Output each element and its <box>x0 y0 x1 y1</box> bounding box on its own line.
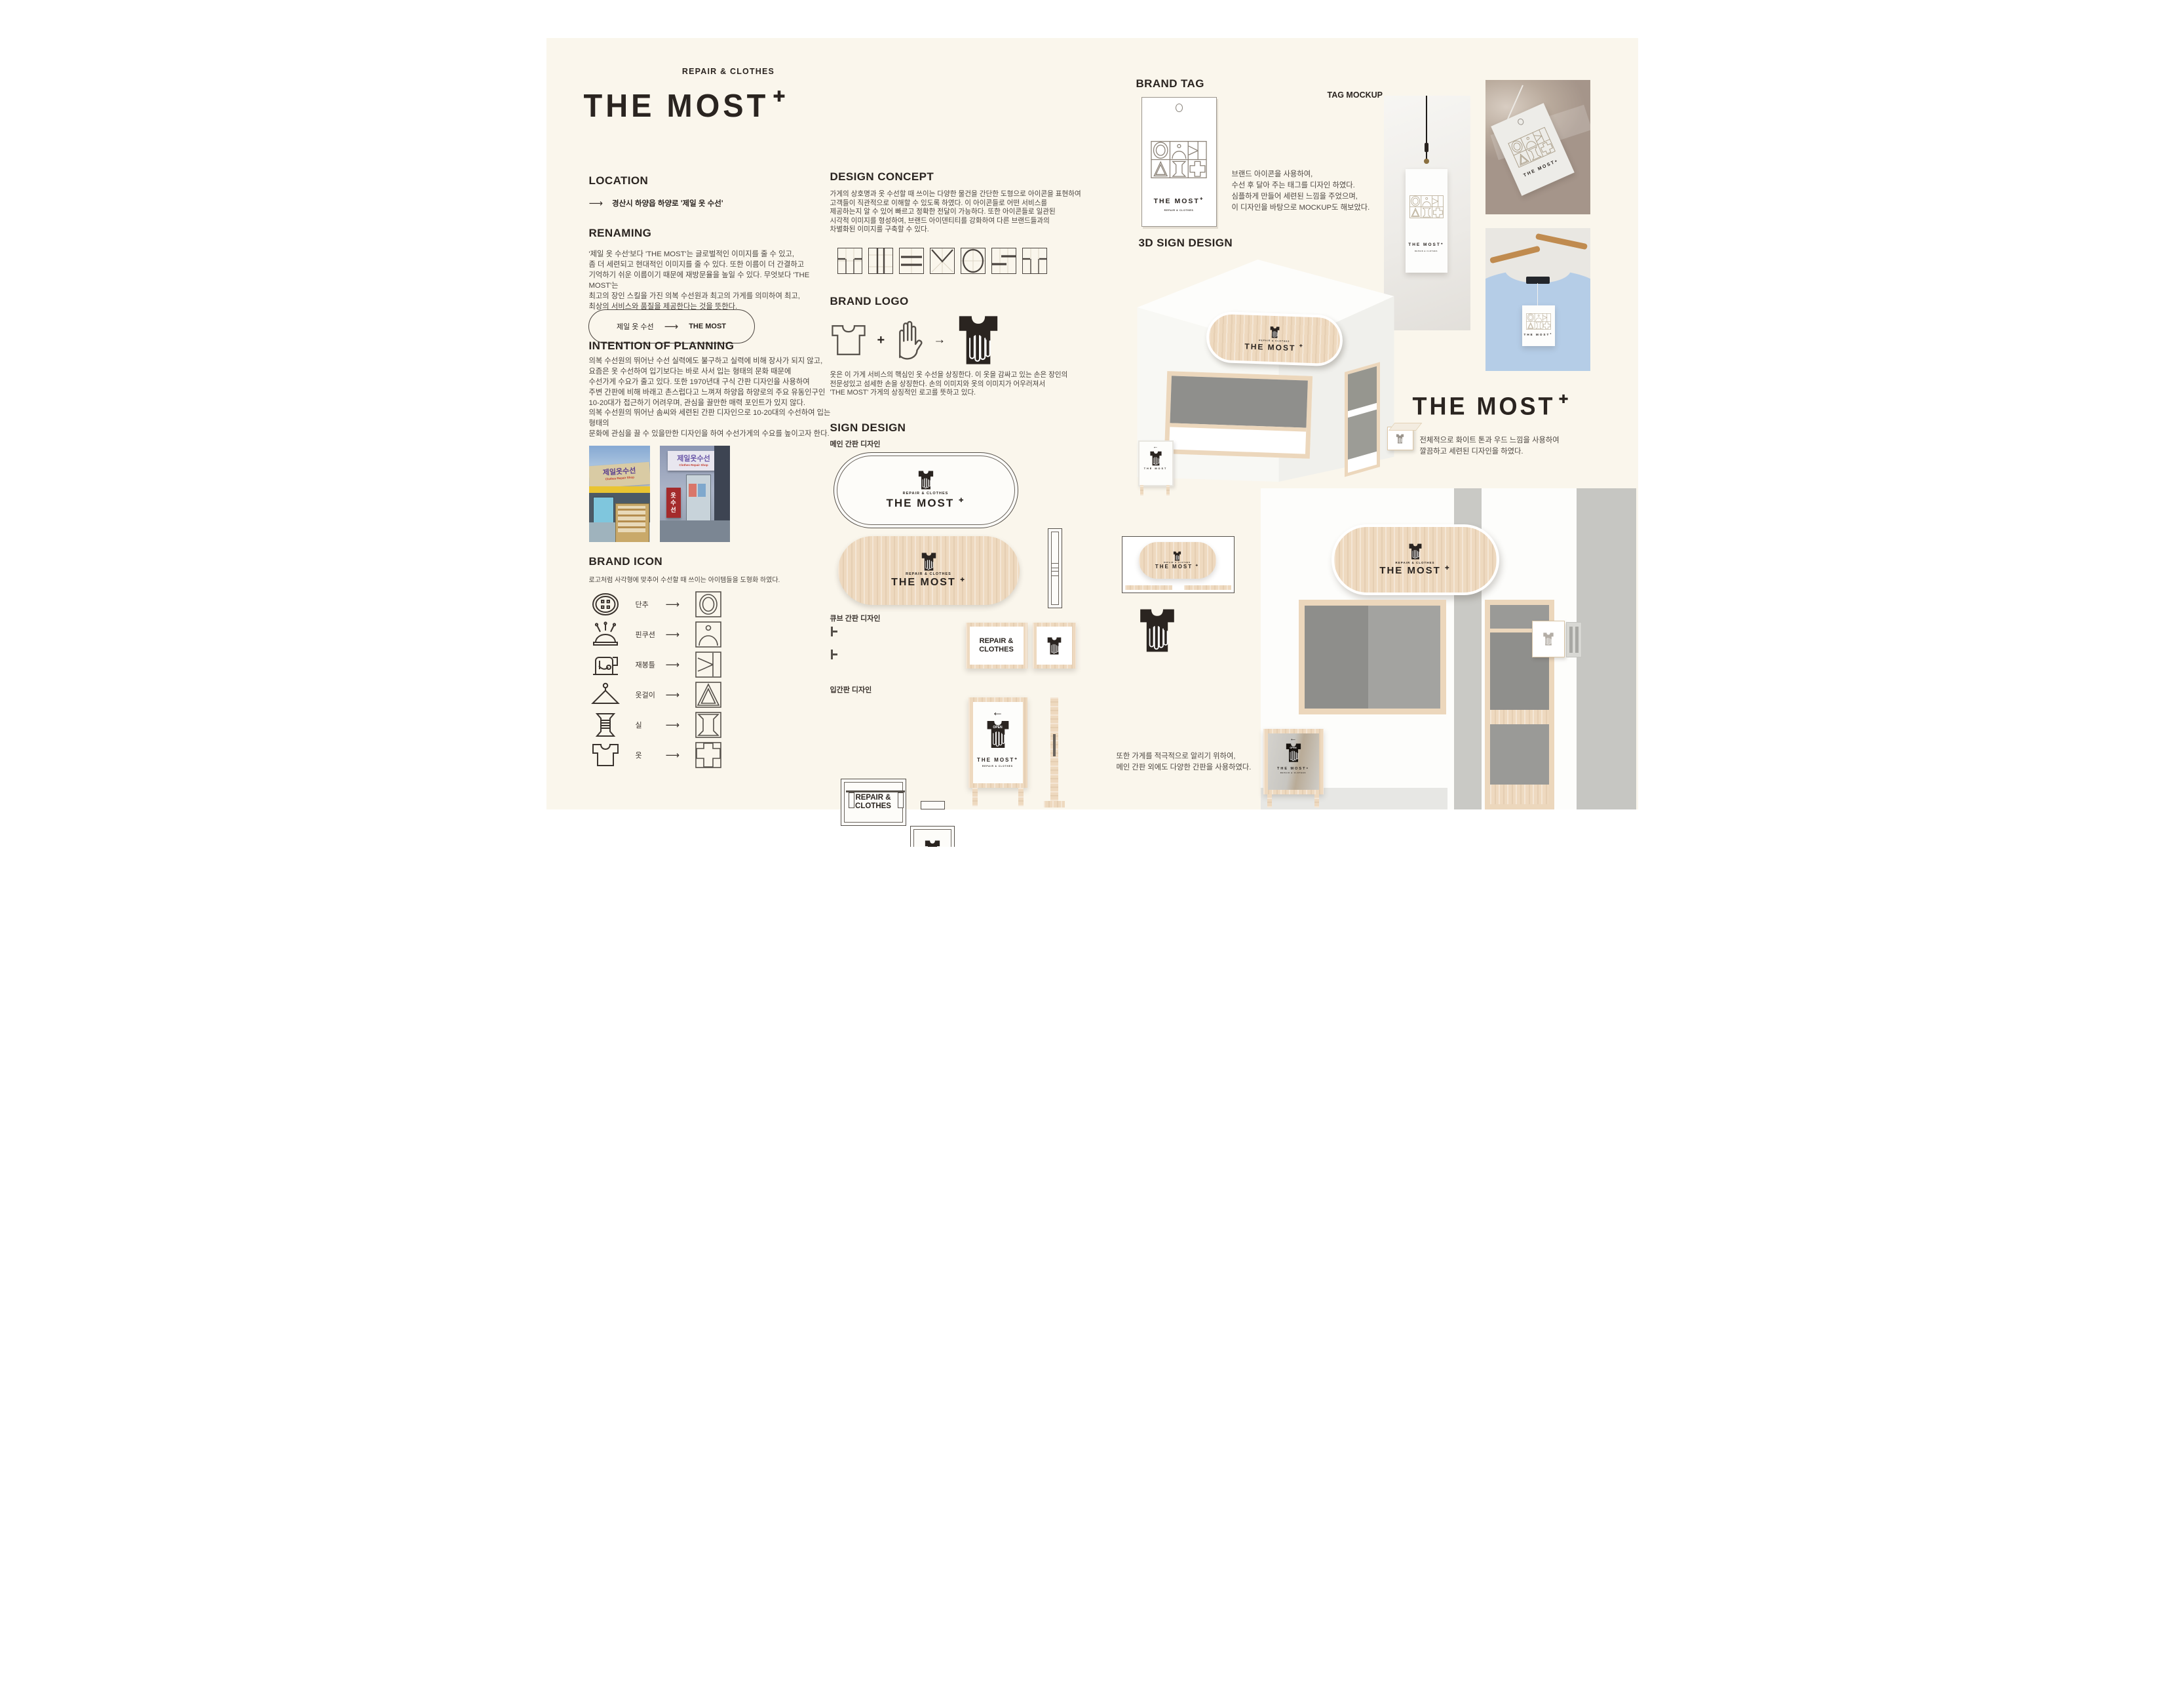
pill-new-name: THE MOST <box>689 322 726 330</box>
sign-big-text: THE MOST ✚ <box>886 497 965 510</box>
store-stand-sign: ← THE MOST <box>1138 440 1174 486</box>
tshirt-icon <box>591 742 620 768</box>
brand-icon-row-sewing-machine: 재봉틀 ⟶ <box>591 650 729 679</box>
letterform-S <box>991 248 1016 274</box>
button-geometric-icon <box>695 591 721 617</box>
brand-plus-icon: ✚ <box>773 88 785 106</box>
brand-logo-mark-large <box>1138 608 1177 653</box>
arrow-right-icon: ⟶ <box>666 629 680 640</box>
store-oval-sign: REPAIR & CLOTHES THE MOST ✚ <box>1205 311 1343 366</box>
renaming-body: '제일 옷 수선'보다 'THE MOST'는 글로벌적인 이미지를 줄 수 있… <box>589 249 815 312</box>
photo2-banner-text: 옷수선 <box>669 492 678 514</box>
sign-logo-mark <box>1408 543 1423 560</box>
mockup-stand-leg <box>1314 794 1319 808</box>
main-sign-label: 메인 간판 디자인 <box>830 438 881 449</box>
brand-icon-label: 옷걸이 <box>636 690 666 700</box>
brand-icon-label: 옷 <box>636 750 666 760</box>
arrow-left-icon: ← <box>992 706 1004 718</box>
tag-on-fabric-photo: THE MOST✚ <box>1485 80 1590 214</box>
rename-pill: 제일 옷 수선 ⟶ THE MOST <box>588 309 755 343</box>
letterform-T1 <box>837 248 862 274</box>
location-heading: LOCATION <box>589 174 649 187</box>
brand-icon-row-thread: 실 ⟶ <box>591 710 729 739</box>
intention-body2: 의복 수선원의 뛰어난 솜씨와 세련된 간판 디자인으로 10-20대의 수선하… <box>589 408 838 439</box>
brand-icon-label: 핀쿠션 <box>636 629 666 640</box>
brand-icon-label: 실 <box>636 720 666 730</box>
pincushion-geometric-icon <box>695 621 721 648</box>
store-side-door <box>1345 362 1380 477</box>
hanger-icon <box>591 682 620 708</box>
tag-brand-text: THE MOST✚ <box>1522 333 1555 336</box>
tshirt-tag-photo: THE MOST✚ <box>1485 228 1590 371</box>
cube-sign-logo-panel-wood <box>1033 623 1076 669</box>
letterform-grid <box>837 248 1047 274</box>
open-label: OPEN <box>986 726 1010 730</box>
plus-icon: + <box>877 333 885 348</box>
mockup-stand-sign: ← OPEN THE MOST✚ REPAIR & CLOTHES <box>1263 729 1324 794</box>
arrow-right-icon: ⟶ <box>666 689 680 701</box>
tshirt-outline-icon <box>830 324 867 356</box>
sign-small-text: REPAIR & CLOTHES <box>906 572 951 576</box>
store-stand-leg <box>1166 485 1170 496</box>
button-icon <box>591 591 620 617</box>
brand-icon-row-hanger: 옷걸이 ⟶ <box>591 680 729 709</box>
sign-small-text: REPAIR & CLOTHES <box>903 492 949 496</box>
cube-sign-logo-faint <box>1396 434 1404 444</box>
brand-logotype: THE MOST <box>584 87 769 125</box>
arrow-right-icon: ⟶ <box>666 659 680 671</box>
cube-sign-text: REPAIR & CLOTHES <box>855 794 891 811</box>
arrow-right-icon: ⟶ <box>664 321 679 332</box>
oval-sign-card: REPAIR & CLOTHES THE MOST ✚ <box>1122 536 1235 593</box>
design-concept-heading: DESIGN CONCEPT <box>830 170 934 184</box>
location-text: 경산시 하양읍 하양로 '제일 옷 수선' <box>612 198 723 208</box>
pill-old-name: 제일 옷 수선 <box>617 321 654 332</box>
cube-sign-logo-panel-outline <box>910 826 955 847</box>
sewing-geometric-icon <box>695 652 721 678</box>
right-brand-logotype: THE MOST <box>1413 392 1556 421</box>
brand-icon-row-clothes: 옷 ⟶ <box>591 741 729 769</box>
tag-icon-grid <box>1409 195 1444 218</box>
storefront-cube-sign <box>1532 621 1582 657</box>
mockup-tag-card: THE MOST✚ REPAIR & CLOTHES <box>1406 169 1447 273</box>
tag-icon-grid <box>1151 141 1207 178</box>
arrow-right-icon: ⟶ <box>589 197 603 209</box>
hand-outline-icon <box>895 320 923 360</box>
brand-icon-subtitle: 로고처럼 사각형에 맞추어 수선할 때 쓰이는 아이템들을 도형화 하였다. <box>589 574 780 584</box>
sign-big-text: THE MOST ✚ <box>891 577 966 589</box>
tee-tag-card: THE MOST✚ <box>1522 305 1555 346</box>
stand-sign-label: 입간판 디자인 <box>830 684 872 695</box>
intention-body1: 의복 수선원의 뛰어난 수선 실력에도 불구하고 실력에 비해 장사가 되지 않… <box>589 356 832 408</box>
stand-wood-leg <box>972 788 978 806</box>
arrow-right-icon: ⟶ <box>666 749 680 761</box>
arrow-right-icon: ⟶ <box>666 598 680 610</box>
main-sign-side-view <box>1048 528 1062 608</box>
store-stand-leg <box>1140 485 1143 496</box>
thread-spool-icon <box>591 712 620 738</box>
sign-logo-mark <box>917 471 934 490</box>
stand-sign-side-wood <box>1050 697 1058 801</box>
letterform-T2 <box>1022 248 1047 274</box>
brand-icon-row-pincushion: 핀쿠션 ⟶ <box>591 620 729 649</box>
sign-big-text: THE MOST✚ <box>977 757 1018 763</box>
brand-icon-row-button: 단추 ⟶ <box>591 590 729 619</box>
pincushion-icon <box>591 621 620 648</box>
sign3d-body: 전체적으로 화이트 톤과 우드 느낌을 사용하여 깔끔하고 세련된 디자인을 하… <box>1420 435 1617 457</box>
brand-icon-label: 재봉틀 <box>636 659 666 670</box>
storefront-window <box>1299 600 1446 714</box>
brand-logo-mark <box>956 315 1001 365</box>
brand-logo-heading: BRAND LOGO <box>830 295 909 308</box>
stand-sign-logo <box>986 720 1010 749</box>
old-shop-photo-2: 제일옷수선 Clothes Repair Shop 옷수선 <box>660 446 730 542</box>
sign-logo-mark <box>1173 551 1181 561</box>
sign-small-text: REPAIR & CLOTHES <box>982 765 1013 768</box>
brand-tagline: REPAIR & CLOTHES <box>668 67 790 76</box>
brand-icon-label: 단추 <box>636 599 666 610</box>
brand-tag-heading: BRAND TAG <box>1136 77 1204 90</box>
stand-sign-logo <box>1149 451 1162 466</box>
arrow-left-icon: ← <box>1153 444 1159 450</box>
letterform-O <box>961 248 986 274</box>
cube-sign-text: REPAIR & CLOTHES <box>979 637 1014 653</box>
tag-small-text: REPAIR & CLOTHES <box>1142 209 1216 212</box>
sign-logo-mark <box>1046 637 1062 655</box>
brand-icon-heading: BRAND ICON <box>589 555 663 568</box>
sign3d-heading: 3D SIGN DESIGN <box>1139 237 1233 250</box>
stand-wood-leg <box>1018 788 1024 806</box>
tag-brand-text: THE MOST✚ <box>1406 243 1447 247</box>
design-concept-body: 가게의 상호명과 옷 수선할 때 쓰이는 다양한 물건을 간단한 도형으로 아이… <box>830 190 1092 235</box>
main-sign-outline: REPAIR & CLOTHES THE MOST ✚ <box>833 452 1018 528</box>
presentation-board: REPAIR & CLOTHES THE MOST ✚ LOCATION ⟶ 경… <box>546 0 1638 847</box>
cube-sign-text-panel-wood: REPAIR & CLOTHES <box>966 623 1027 669</box>
renaming-heading: RENAMING <box>589 227 652 240</box>
equation-arrow-icon: → <box>933 333 946 347</box>
letterform-M <box>930 248 955 274</box>
store-cube-sign <box>1387 423 1417 449</box>
sewing-machine-icon <box>591 652 620 678</box>
arrow-right-icon: ⟶ <box>666 719 680 731</box>
old-shop-photo-1: 제일옷수선 Clothes Repair Shop <box>589 446 650 542</box>
photo2-sign-text: 제일옷수선 <box>668 453 720 463</box>
wall-right <box>1577 488 1636 809</box>
tag-icon-grid <box>1526 313 1551 330</box>
tag-hole <box>1176 104 1183 112</box>
hanger-geometric-icon <box>695 682 721 708</box>
store-window <box>1164 371 1312 459</box>
arrow-left-icon: ← <box>1290 735 1297 743</box>
storefront-oval-sign: REPAIR & CLOTHES THE MOST ✚ <box>1331 524 1499 595</box>
hanger-right <box>1535 233 1587 250</box>
tag-small-text: REPAIR & CLOTHES <box>1406 250 1447 252</box>
mockup-stand-leg <box>1267 794 1272 808</box>
brand-plus-icon: ✚ <box>1559 393 1569 406</box>
thread-geometric-icon <box>695 712 721 738</box>
intention-heading: INTENTION OF PLANNING <box>589 340 735 353</box>
sign-logo-mark <box>921 553 937 571</box>
clothes-geometric-icon <box>695 742 721 768</box>
sign-design-heading: SIGN DESIGN <box>830 421 906 435</box>
brand-tag-design: THE MOST✚ REPAIR & CLOTHES <box>1141 97 1217 227</box>
tag-mockup-label: TAG MOCKUP <box>1328 90 1383 100</box>
brand-logo-body: 옷은 이 가게 서비스의 핵심인 옷 수선을 상징한다. 이 옷을 감싸고 있는… <box>830 371 1092 398</box>
main-sign-wood: REPAIR & CLOTHES THE MOST ✚ <box>838 536 1020 605</box>
sign-big-text: THE MOST ✚ <box>1244 341 1304 353</box>
sign-logo-mark <box>924 840 941 847</box>
letterform-E <box>899 248 924 274</box>
tag-brand-text: THE MOST✚ <box>1142 197 1216 205</box>
letterform-H <box>868 248 893 274</box>
stand-sign-wood: ← OPEN THE MOST✚ REPAIR & CLOTHES <box>968 697 1027 788</box>
stand-side-base <box>921 801 945 809</box>
stand-wood-base <box>1044 801 1065 808</box>
cube-sign-logo-faint <box>1542 632 1554 646</box>
cube-sign-label: 큐브 간판 디자인 <box>830 613 881 623</box>
sign-logo-mark <box>1269 326 1280 338</box>
photo2-sign-sub: Clothes Repair Shop <box>668 463 720 467</box>
